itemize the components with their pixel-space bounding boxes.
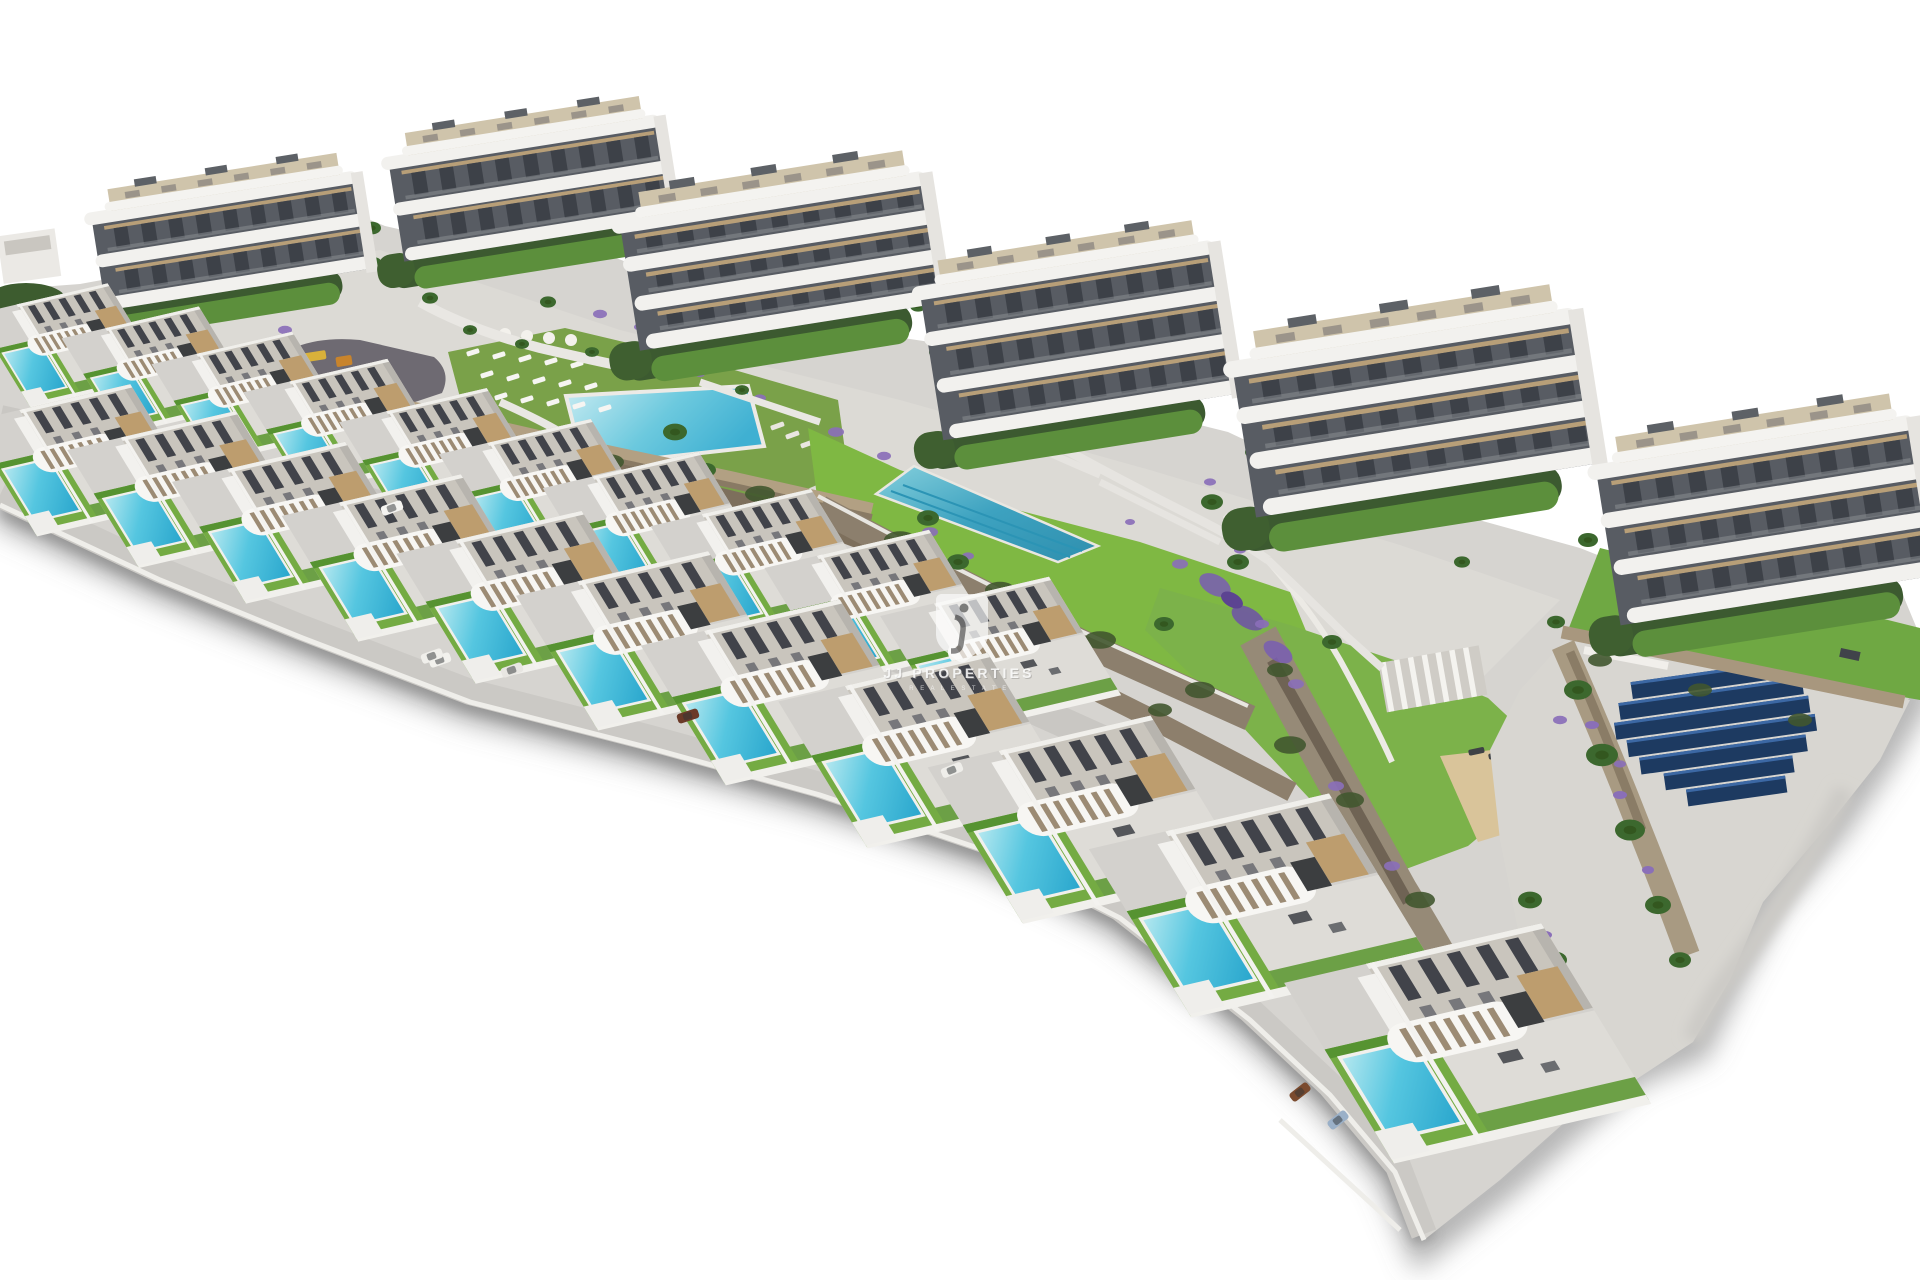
svg-text:R E A L E S T A T E: R E A L E S T A T E — [909, 686, 1009, 692]
svg-text:JJ PROPERTIES: JJ PROPERTIES — [883, 665, 1034, 681]
